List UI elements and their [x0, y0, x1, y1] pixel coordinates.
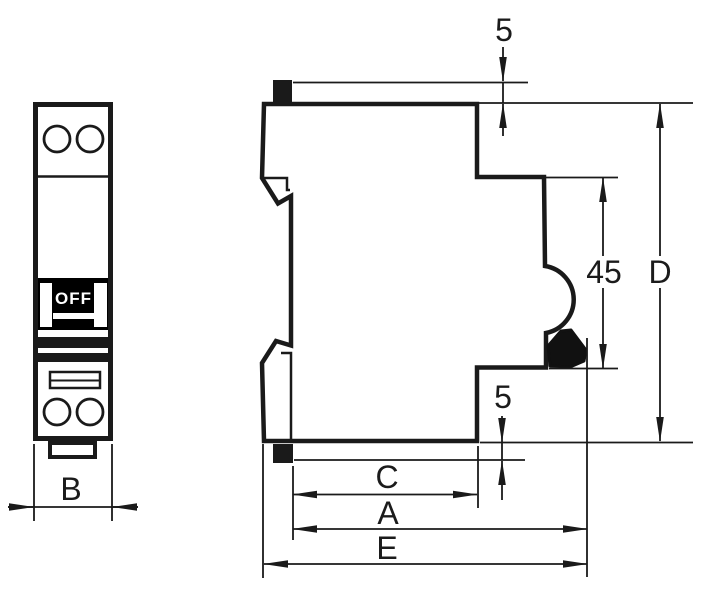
top-terminal-block	[273, 80, 292, 103]
dimension-top-5: 5	[495, 12, 513, 136]
dim-label-B: B	[60, 471, 81, 507]
dimension-45: 45	[583, 178, 625, 368]
bottom-terminal-block	[273, 444, 293, 463]
toggle-off-label: OFF	[55, 289, 92, 308]
front-stripe-2	[33, 353, 113, 362]
terminal-screw-bottom-left	[44, 399, 70, 425]
side-profile-outline	[262, 104, 574, 441]
dim-label-45: 45	[586, 254, 622, 290]
dimension-bottom-5: 5	[494, 379, 512, 500]
dimension-drawing: OFF B	[0, 0, 714, 614]
terminal-screw-bottom-right	[77, 399, 103, 425]
dim-label-top5: 5	[495, 12, 513, 48]
dimension-A: A	[293, 495, 587, 531]
dim-label-E: E	[376, 530, 397, 566]
toggle-handle-side	[548, 330, 586, 367]
front-stripe-1	[33, 337, 113, 348]
toggle-track	[53, 313, 94, 319]
dim-label-A: A	[377, 495, 399, 531]
dimension-D: D	[643, 104, 677, 441]
terminal-screw-top-right	[77, 126, 103, 152]
dim-label-D: D	[648, 254, 671, 290]
dim-label-bottom5: 5	[494, 379, 512, 415]
dim-label-C: C	[375, 459, 398, 495]
terminal-screw-top-left	[44, 126, 70, 152]
dimension-E: E	[264, 530, 587, 566]
toggle-slot-right	[94, 283, 107, 327]
dimension-C: C	[293, 459, 477, 495]
bottom-clip-tab	[50, 443, 95, 457]
toggle-slot-left	[40, 283, 52, 327]
drawing-canvas: OFF B	[0, 0, 714, 614]
front-view: OFF B	[8, 105, 138, 522]
side-view: 5 45 D 5 C A	[262, 12, 693, 578]
toggle-block: OFF	[38, 278, 108, 330]
